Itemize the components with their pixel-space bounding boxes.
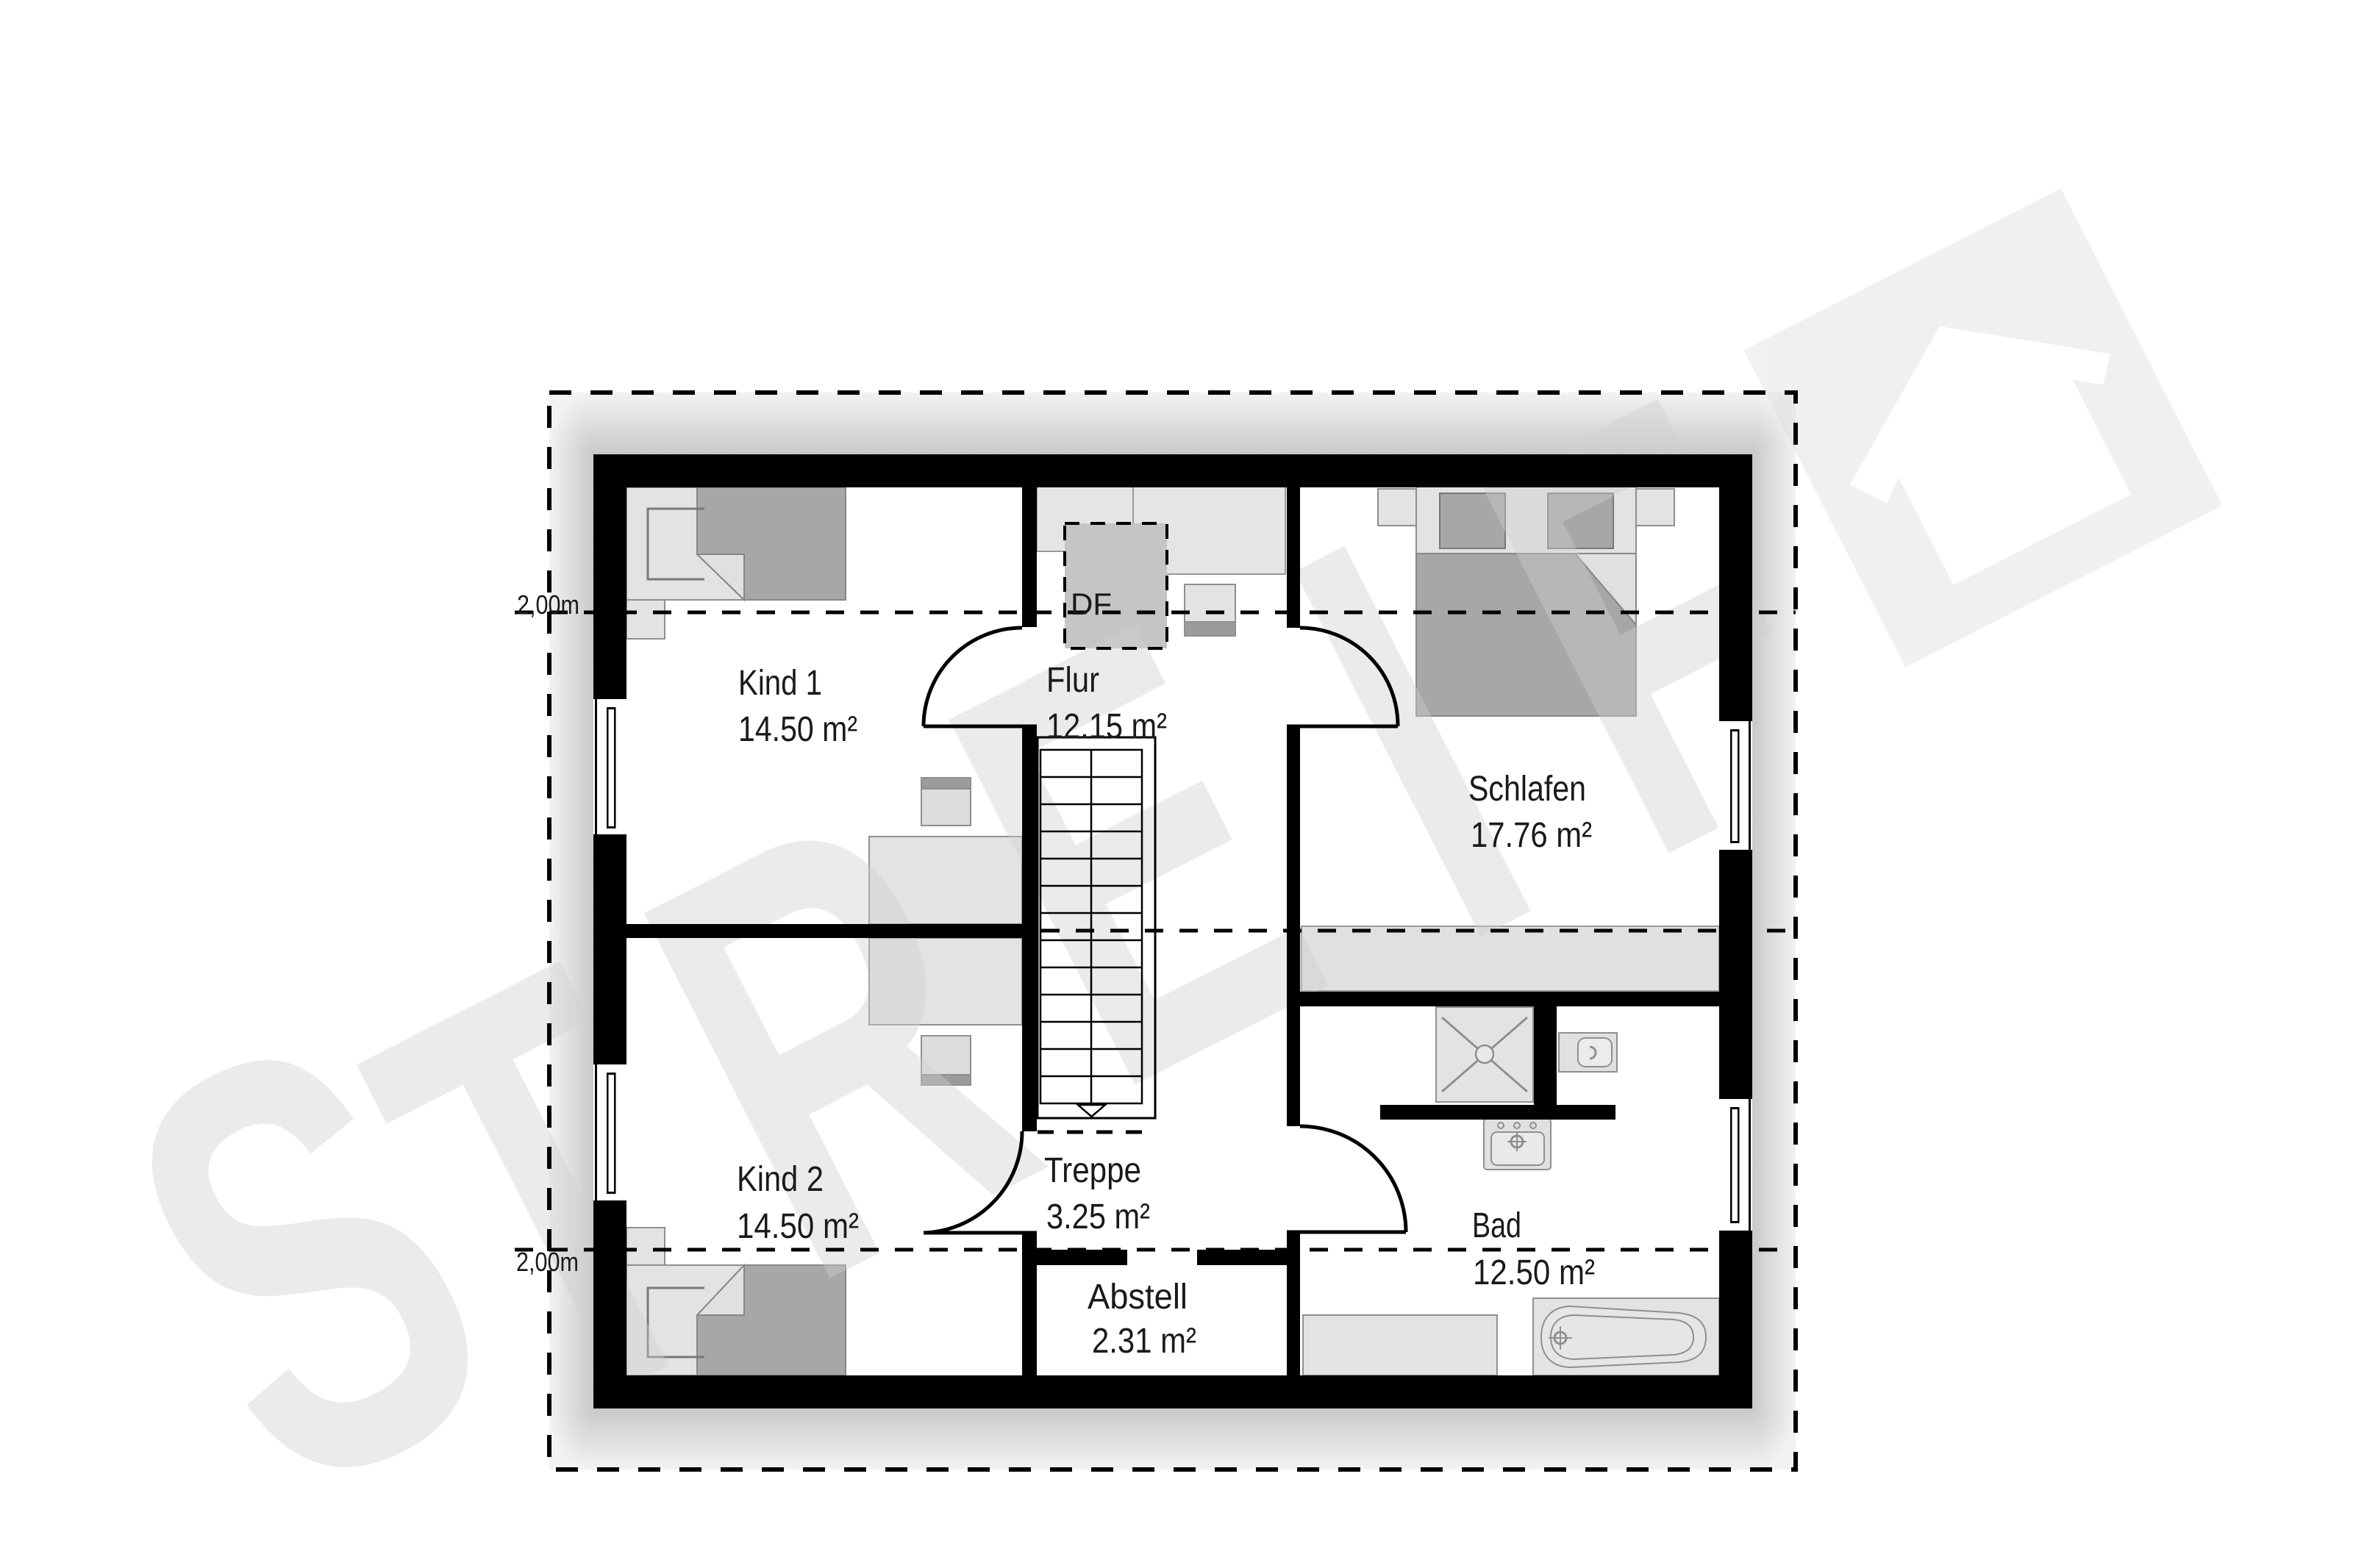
svg-text:2.31 m²: 2.31 m² (1092, 1322, 1196, 1361)
svg-text:Flur: Flur (1046, 661, 1099, 700)
svg-text:2,00m: 2,00m (517, 590, 579, 620)
svg-text:Abstell: Abstell (1088, 1278, 1188, 1317)
svg-text:12.15 m²: 12.15 m² (1046, 707, 1167, 746)
svg-text:Schlafen: Schlafen (1468, 770, 1586, 809)
svg-text:Kind 1: Kind 1 (738, 664, 822, 703)
svg-text:2,00m: 2,00m (516, 1247, 579, 1277)
svg-text:Bad: Bad (1472, 1206, 1521, 1245)
svg-text:14.50 m²: 14.50 m² (737, 1207, 859, 1246)
svg-text:Kind 2: Kind 2 (737, 1160, 824, 1199)
svg-text:DF: DF (1071, 587, 1112, 621)
svg-text:3.25 m²: 3.25 m² (1046, 1198, 1150, 1236)
svg-text:Treppe: Treppe (1044, 1151, 1141, 1190)
svg-text:14.50 m²: 14.50 m² (738, 710, 857, 749)
svg-text:17.76 m²: 17.76 m² (1471, 816, 1592, 855)
svg-text:12.50 m²: 12.50 m² (1473, 1253, 1595, 1292)
